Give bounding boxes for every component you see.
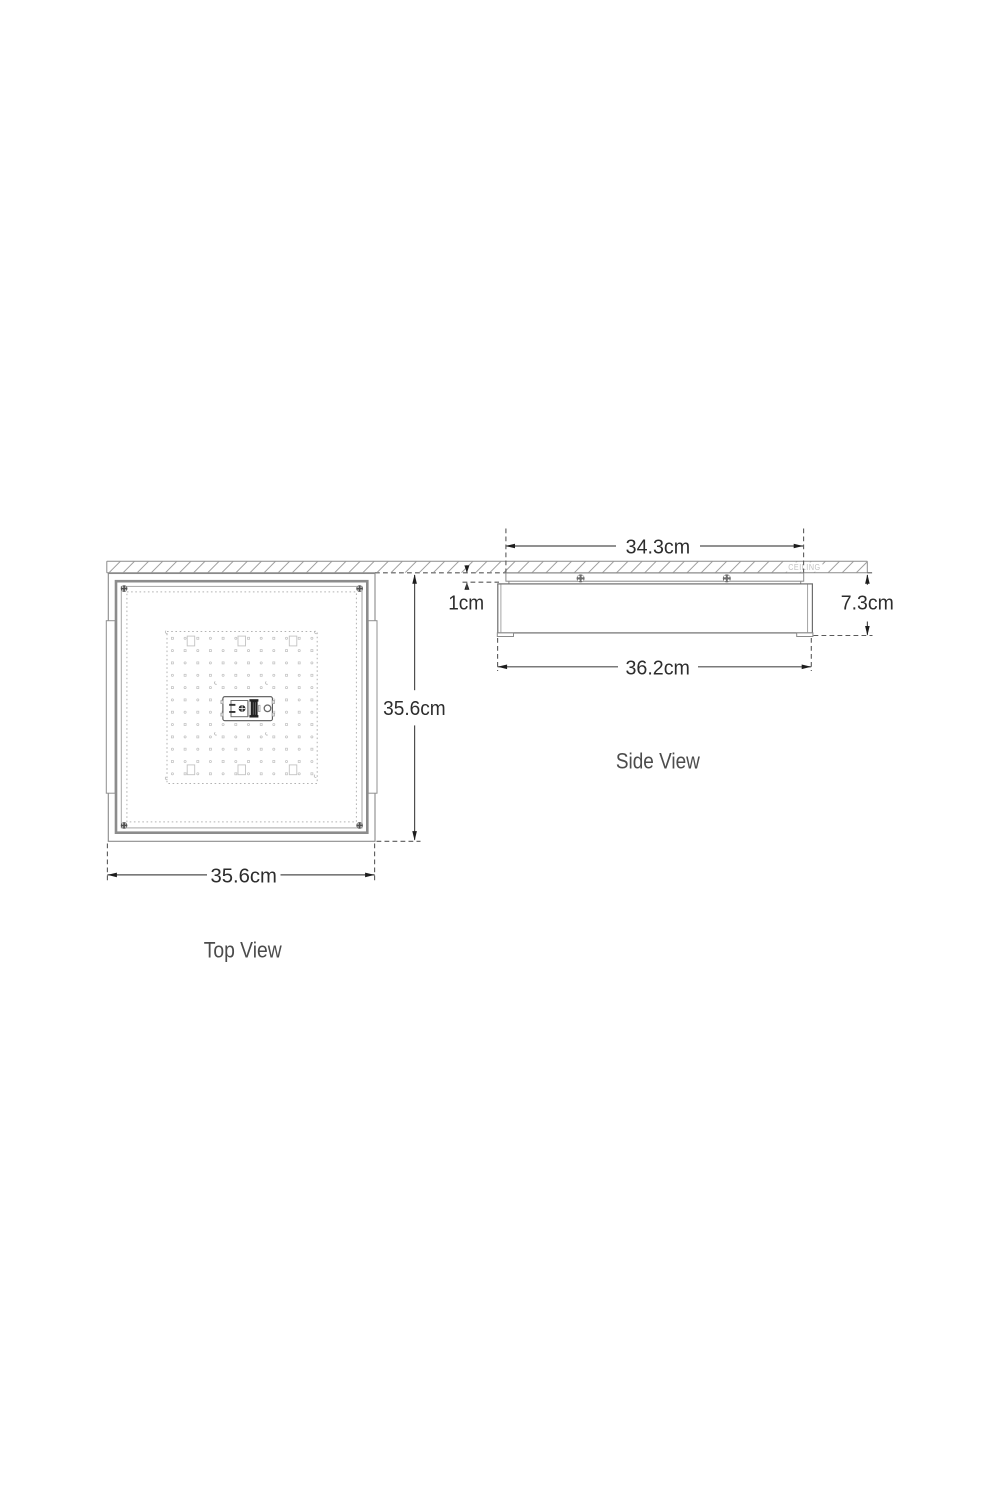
svg-text:Top View: Top View bbox=[204, 938, 283, 963]
svg-text:34.3cm: 34.3cm bbox=[626, 536, 691, 559]
svg-text:1cm: 1cm bbox=[448, 591, 484, 614]
svg-text:CEILING: CEILING bbox=[788, 563, 821, 572]
svg-text:35.6cm: 35.6cm bbox=[210, 865, 277, 888]
svg-text:36.2cm: 36.2cm bbox=[625, 656, 690, 679]
svg-text:35.6cm: 35.6cm bbox=[383, 697, 446, 720]
svg-text:Side View: Side View bbox=[616, 748, 701, 773]
svg-text:7.3cm: 7.3cm bbox=[841, 591, 894, 614]
